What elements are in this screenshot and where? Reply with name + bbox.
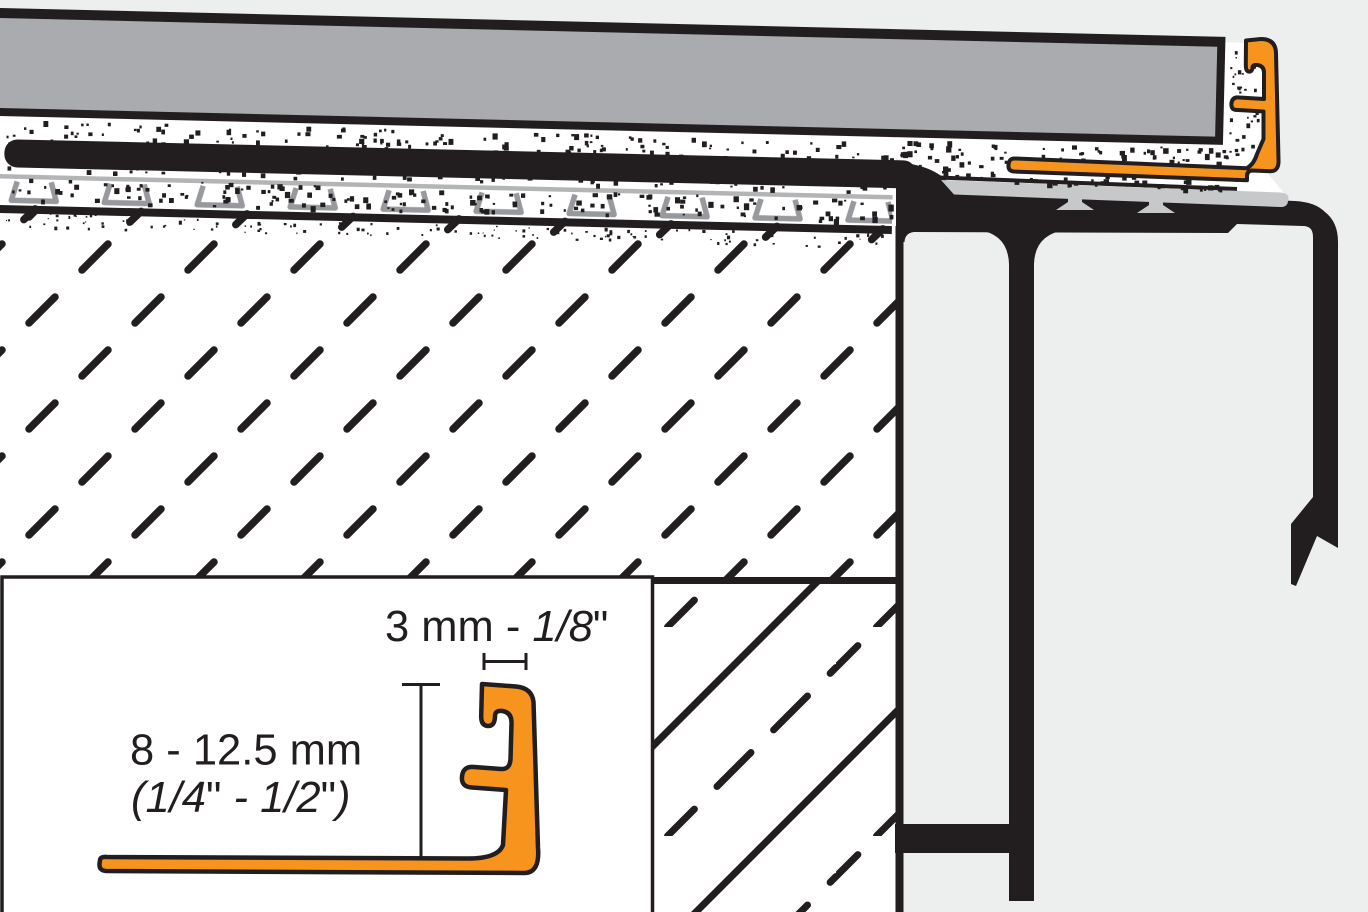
svg-text:8 - 12.5 mm: 8 - 12.5 mm <box>130 727 362 775</box>
svg-text:3 mm - 1/8": 3 mm - 1/8" <box>385 603 608 651</box>
svg-text:(1/4" - 1/2"): (1/4" - 1/2") <box>131 774 351 822</box>
